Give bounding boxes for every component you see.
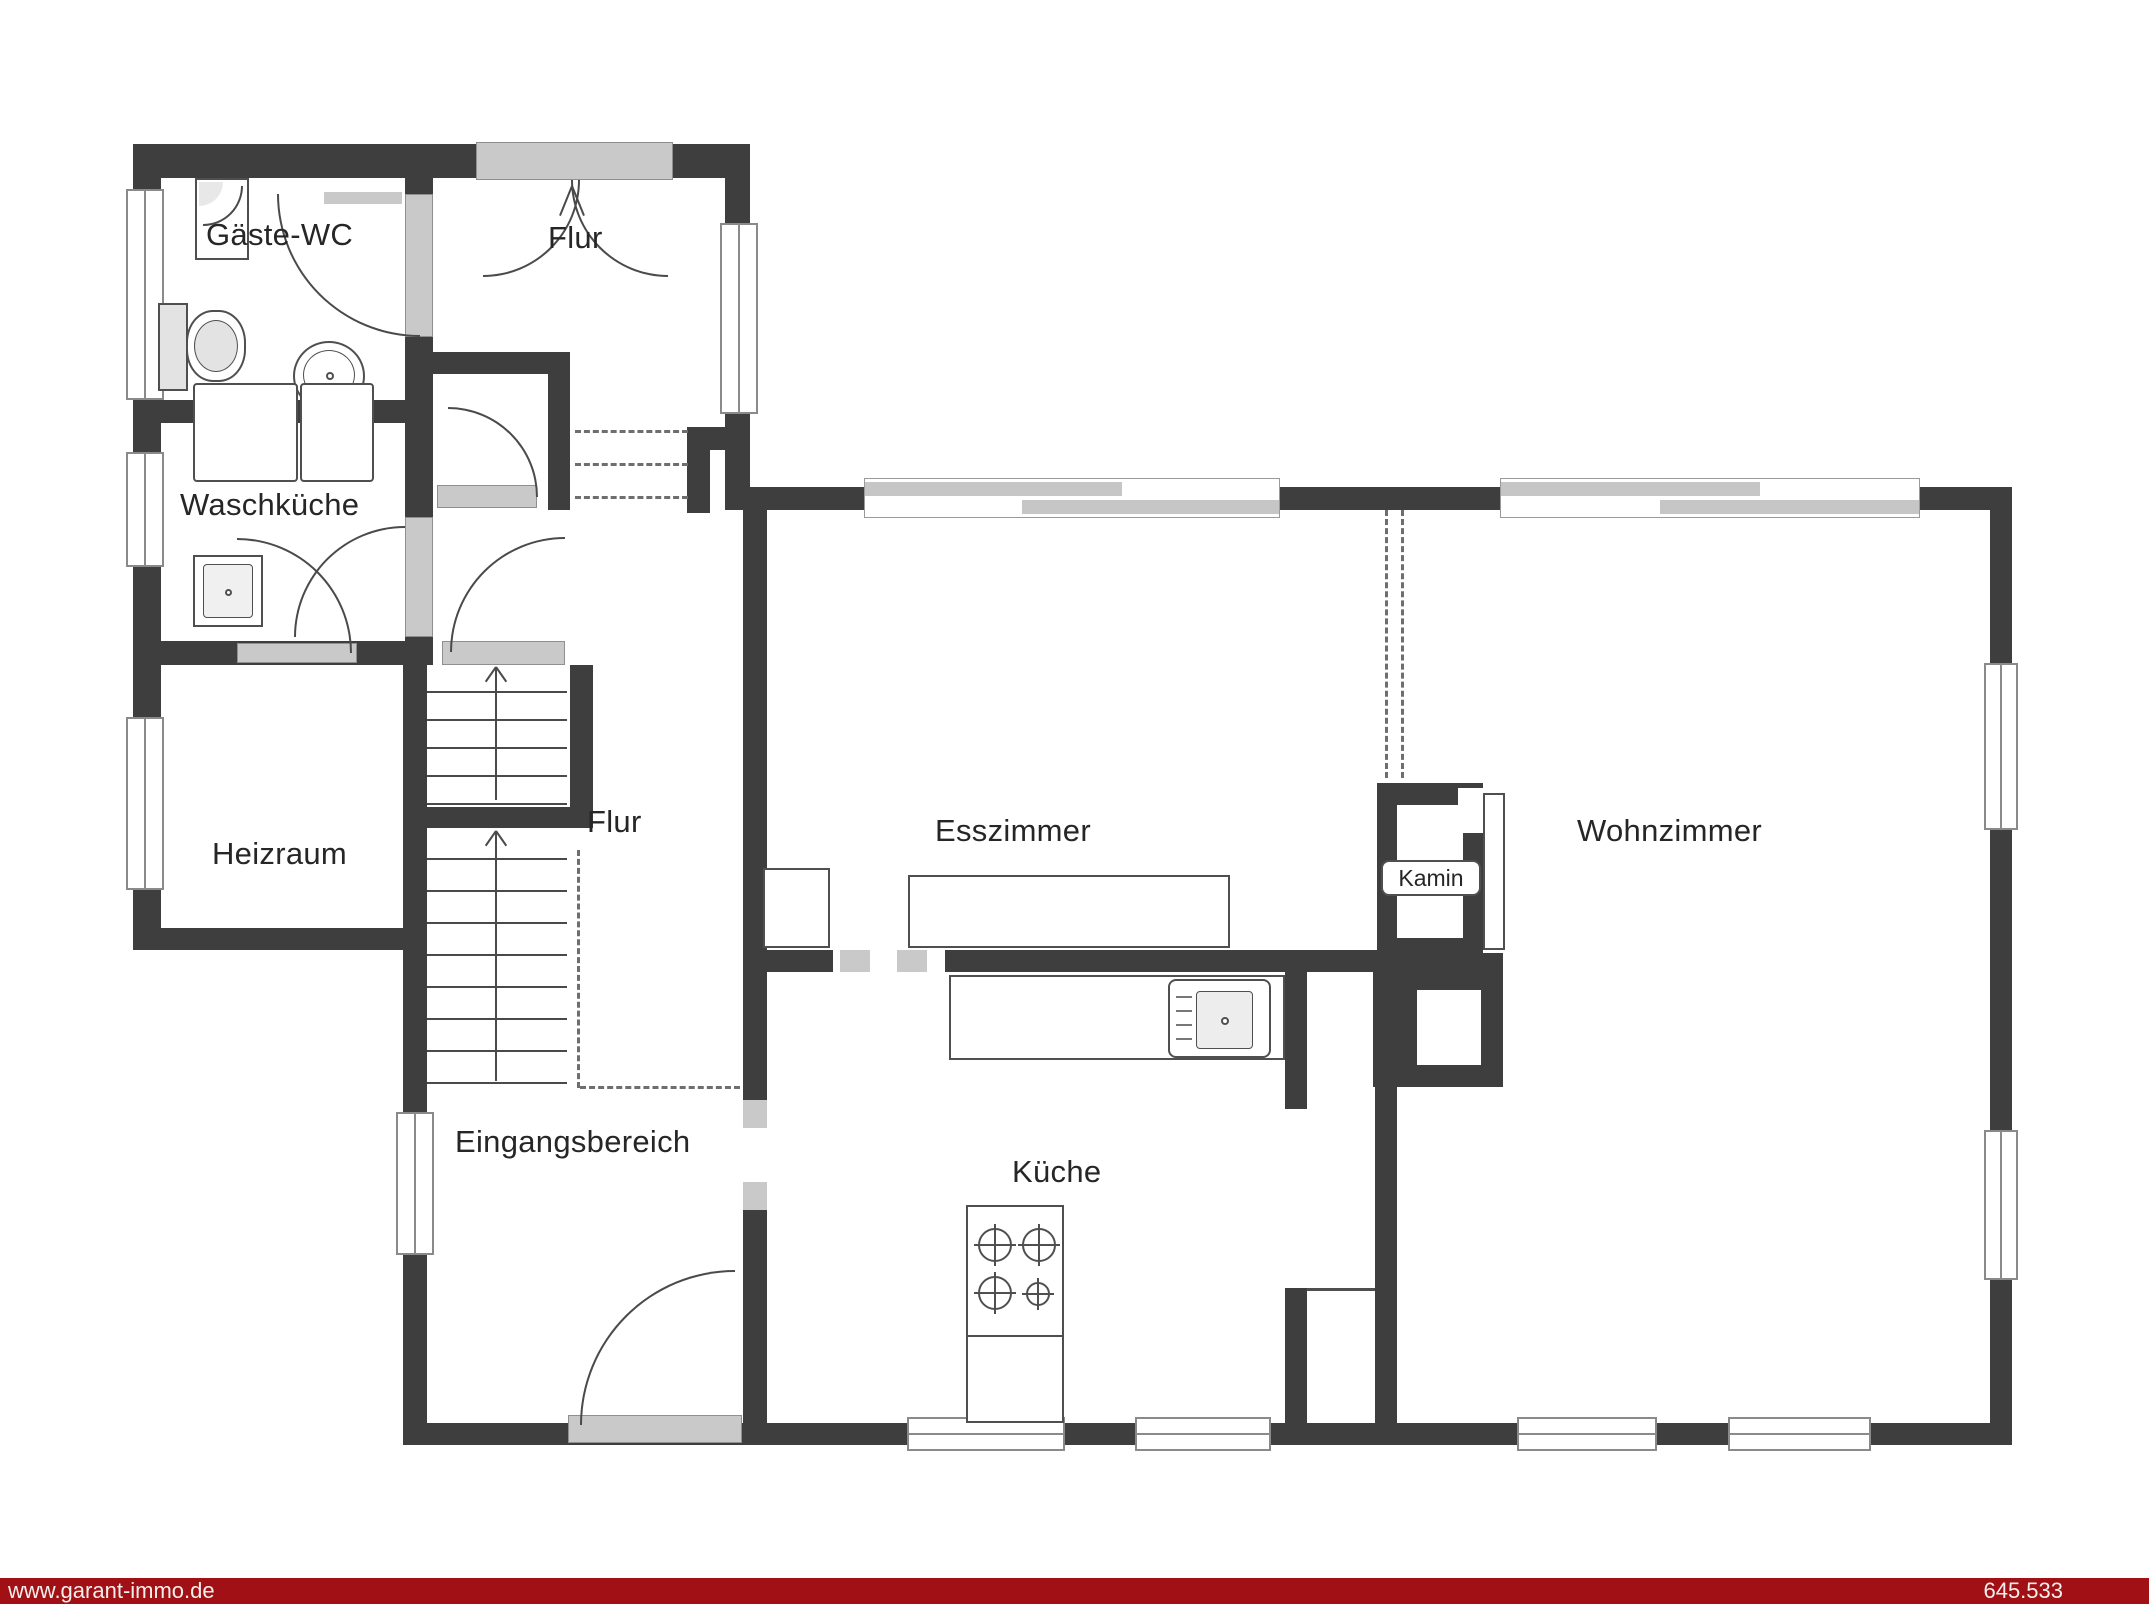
window-waschkueche-left — [126, 452, 164, 567]
stairs-upper-flight — [427, 665, 567, 807]
utility-sink-drain — [225, 589, 232, 596]
dashed-overhead-1 — [575, 430, 688, 433]
opening-dash — [743, 1182, 767, 1210]
label-waschkueche: Waschküche — [180, 487, 359, 523]
toilet-bowl-inner — [194, 320, 238, 372]
wall-kueche-right-upper — [1285, 972, 1307, 1109]
esszimmer-cupboard — [763, 868, 830, 948]
stove-burner — [1022, 1228, 1056, 1262]
window-kueche-bottom-2 — [1135, 1417, 1271, 1451]
window-wohnzimmer-right-1 — [1984, 663, 2018, 830]
window-wohnzimmer-top — [1500, 478, 1920, 518]
opening-dash — [840, 950, 870, 972]
door-band-flur-top — [476, 142, 673, 180]
wall-right-outer — [1990, 487, 2012, 1443]
floor-plan: Gäste-WC Flur Waschküche Heizraum Flur E… — [0, 0, 2149, 1606]
wall-center-vertical — [743, 510, 767, 1100]
esszimmer-sideboard — [908, 875, 1230, 948]
window-sash — [865, 482, 1122, 496]
toilet-tank — [158, 303, 188, 391]
footer-bar — [0, 1578, 2149, 1604]
wall-wohnzimmer-left — [1375, 1087, 1397, 1443]
stairs-lower-flight — [427, 828, 567, 1086]
label-flur-top: Flur — [548, 220, 603, 256]
washing-machine-2 — [300, 383, 374, 482]
label-kueche: Küche — [1012, 1154, 1101, 1190]
dashed-stairs-edge — [577, 850, 580, 1088]
door-leaf-waschkueche — [405, 517, 433, 637]
wall-west-lower — [403, 665, 427, 1443]
label-heizraum: Heizraum — [212, 836, 347, 872]
stove-burner — [978, 1228, 1012, 1262]
dashed-overhead-3 — [575, 496, 688, 499]
window-sash — [1660, 500, 1919, 514]
opening-dash — [897, 950, 927, 972]
label-flur-mid: Flur — [587, 804, 642, 840]
wall-stairs-right — [570, 665, 593, 807]
window-esszimmer-top — [864, 478, 1280, 518]
label-kamin: Kamin — [1381, 860, 1481, 896]
door-arc-wc — [277, 194, 420, 337]
window-sash — [1501, 482, 1760, 496]
kamin-lower-interior — [1417, 990, 1481, 1065]
wall-piece-v — [687, 427, 710, 513]
door-arc-closet — [448, 407, 538, 497]
wall-esszimmer-kueche-a — [763, 950, 833, 972]
stairs-direction-line — [495, 667, 497, 800]
window-heizraum-left — [126, 717, 164, 890]
dashed-stairs-bottom — [580, 1086, 740, 1089]
label-gaeste-wc: Gäste-WC — [206, 217, 353, 253]
dashed-ess-wohn-2 — [1401, 510, 1404, 778]
label-eingangsbereich: Eingangsbereich — [455, 1124, 690, 1160]
wall-closet-right — [548, 352, 570, 510]
washing-machine-1 — [193, 383, 298, 482]
step-line — [1307, 1288, 1375, 1291]
window-wohnzimmer-bottom-1 — [1517, 1417, 1657, 1451]
footer-website: www.garant-immo.de — [8, 1580, 215, 1602]
window-wohnzimmer-right-2 — [1984, 1130, 2018, 1280]
stairs-direction-line — [495, 831, 497, 1081]
wall-flur-right-upper — [725, 178, 750, 223]
window-wohnzimmer-bottom-2 — [1728, 1417, 1871, 1451]
kamin-glass-front — [1483, 793, 1505, 950]
kitchen-sink-drain — [1221, 1017, 1229, 1025]
stove-burner — [978, 1276, 1012, 1310]
opening-dash — [743, 1100, 767, 1128]
window-sash — [1022, 500, 1279, 514]
wall-closet-top — [428, 352, 563, 374]
label-wohnzimmer: Wohnzimmer — [1577, 813, 1762, 849]
wall-heizraum-bottom — [133, 928, 427, 950]
stove-burner — [1026, 1282, 1050, 1306]
dashed-ess-wohn-1 — [1385, 510, 1388, 778]
wall-center-vertical-lower — [743, 1210, 767, 1423]
footer-id: 645.533 — [1983, 1580, 2063, 1602]
door-arc-entrance — [580, 1270, 735, 1425]
wall-esszimmer-kueche-b — [945, 950, 1377, 972]
wc-sink-drain — [326, 372, 334, 380]
kamin-opening — [1458, 788, 1486, 833]
wall-stairs-landing — [425, 807, 593, 828]
wall-kueche-right-lower — [1285, 1288, 1307, 1423]
window-flur-right — [720, 223, 758, 414]
door-arc-stairs — [450, 537, 565, 652]
window-eingang-left — [396, 1112, 434, 1255]
label-esszimmer: Esszimmer — [935, 813, 1091, 849]
dashed-overhead-2 — [575, 463, 688, 466]
